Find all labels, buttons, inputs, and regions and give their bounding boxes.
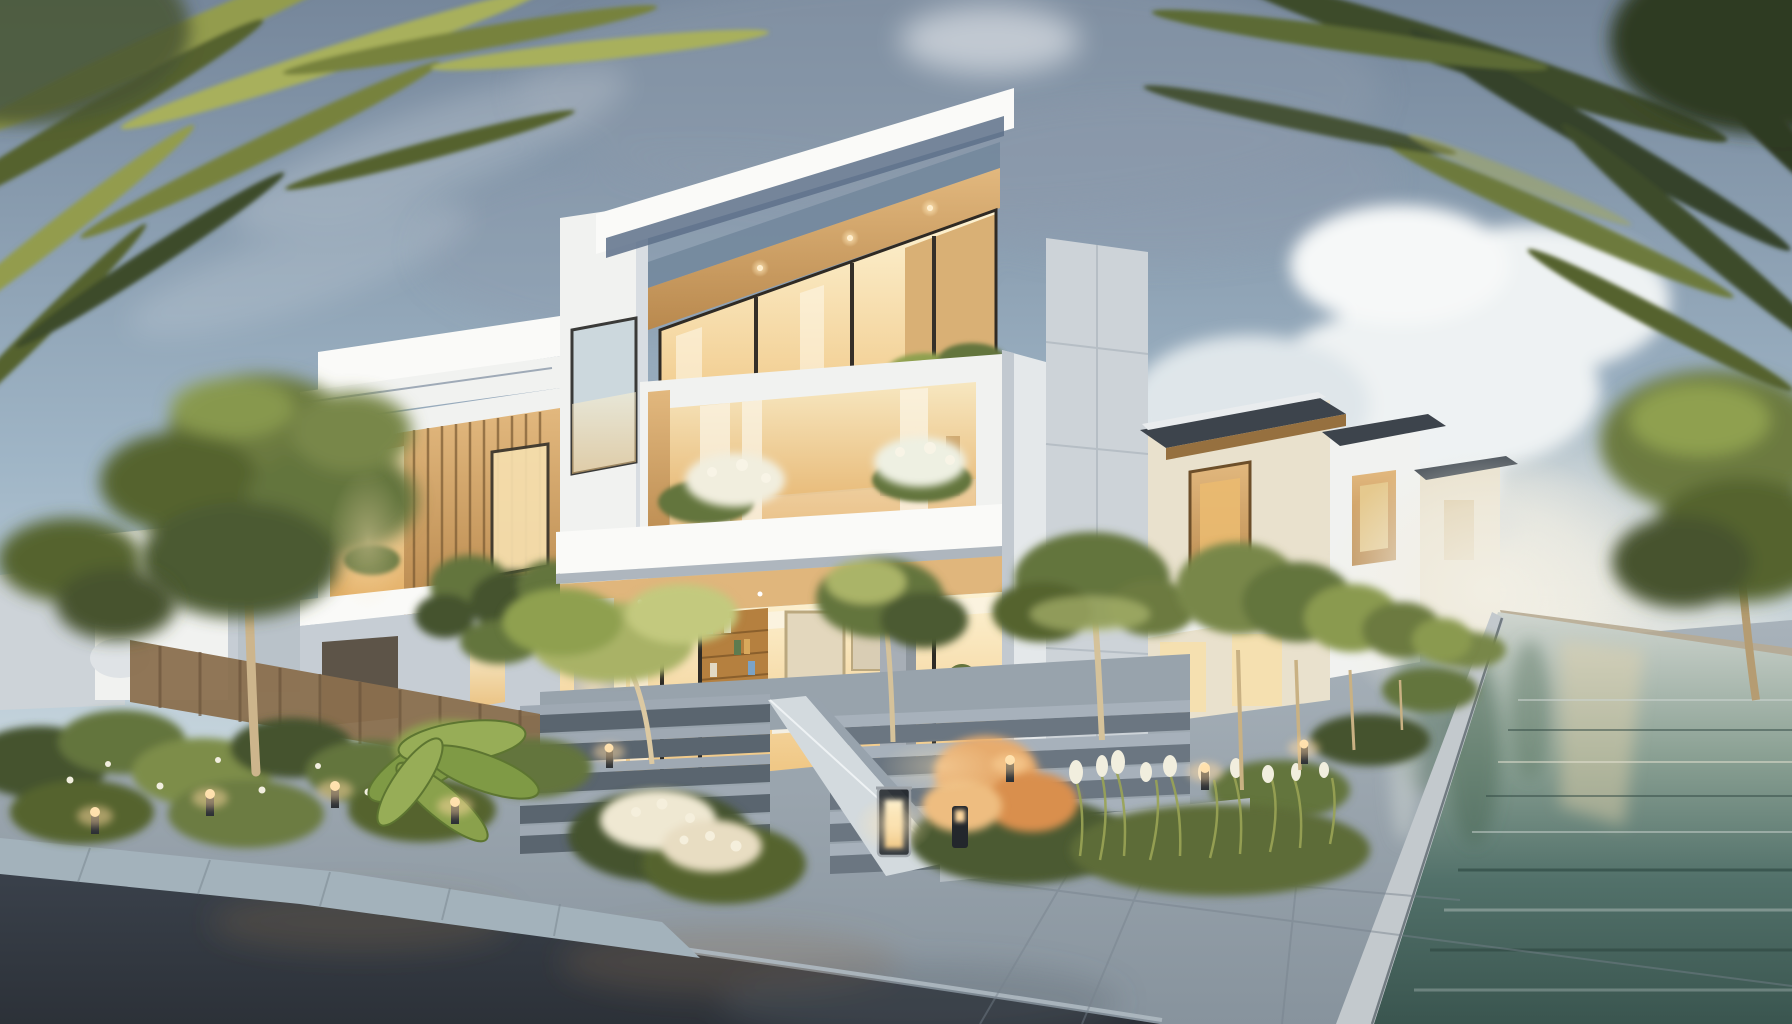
- canopy-clump: [1612, 516, 1752, 608]
- uplight-glow-steps: [880, 738, 1000, 794]
- canopy-clump: [292, 392, 412, 472]
- canopy-lit-edge: [1030, 596, 1150, 632]
- cloud-puff: [1290, 205, 1510, 325]
- recessed-light-glow: [921, 199, 939, 217]
- canopy-clump: [880, 592, 968, 648]
- canopy-clump: [56, 568, 176, 640]
- hedge-clump: [1382, 668, 1478, 712]
- tree-reflection: [1510, 640, 1550, 780]
- canopy-clump: [1412, 618, 1472, 662]
- canopy-clump: [502, 588, 622, 656]
- canopy-highlight: [1630, 384, 1770, 456]
- canopy-highlight: [170, 378, 294, 438]
- tree-canopy: [1600, 370, 1792, 608]
- left-pier-window-glow: [572, 392, 636, 474]
- bollard-light: [952, 806, 968, 848]
- canopy-highlight: [826, 560, 906, 604]
- recessed-light-glow: [841, 229, 859, 247]
- bush: [168, 780, 324, 848]
- bed-green: [1070, 804, 1370, 896]
- recessed-light-glow: [751, 259, 769, 277]
- cream-flowers: [662, 820, 762, 872]
- hedge-clump: [1310, 714, 1430, 766]
- cloud-wisp: [900, 6, 1080, 74]
- lantern-halo: [854, 794, 934, 854]
- canopy-clump: [626, 584, 738, 644]
- uplight-glow-left-villa: [328, 470, 408, 610]
- left-villa-window: [492, 444, 548, 576]
- villa-community-rendering: [0, 0, 1792, 1024]
